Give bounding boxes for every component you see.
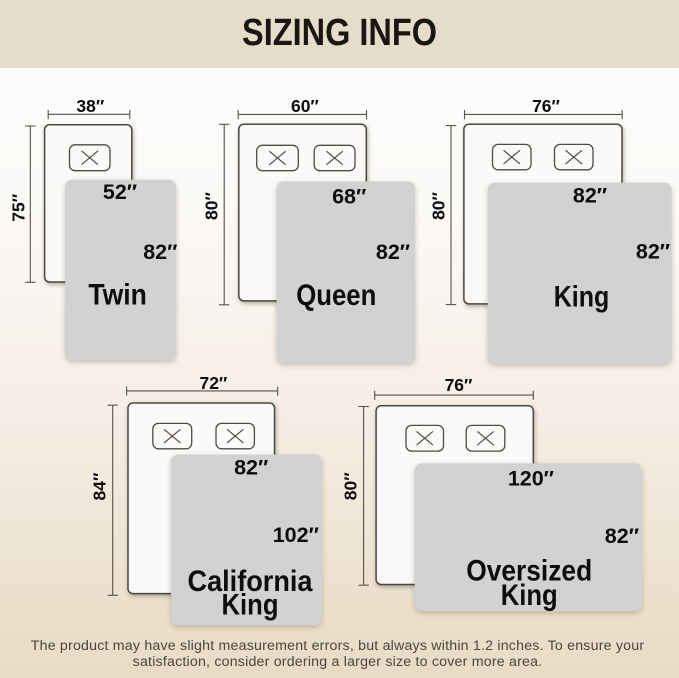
svg-text:76″: 76″ (532, 96, 560, 116)
svg-text:82″: 82″ (143, 240, 177, 264)
svg-text:82″: 82″ (573, 184, 607, 208)
svg-text:84″: 84″ (89, 472, 109, 500)
svg-text:King: King (222, 589, 279, 622)
svg-text:Twin: Twin (88, 279, 147, 312)
svg-text:38″: 38″ (76, 96, 104, 116)
svg-text:82″: 82″ (605, 524, 639, 548)
svg-text:72″: 72″ (199, 373, 227, 393)
svg-text:68″: 68″ (332, 184, 366, 208)
svg-text:80″: 80″ (429, 191, 449, 219)
svg-text:60″: 60″ (291, 96, 319, 116)
svg-text:King: King (501, 579, 558, 612)
svg-text:80″: 80″ (341, 472, 361, 500)
svg-text:82″: 82″ (234, 456, 268, 480)
svg-text:102″: 102″ (273, 523, 319, 547)
svg-text:76″: 76″ (445, 375, 473, 395)
svg-text:80″: 80″ (201, 191, 221, 219)
svg-text:Queen: Queen (296, 279, 376, 312)
svg-text:82″: 82″ (376, 240, 410, 264)
svg-text:120″: 120″ (508, 467, 554, 491)
svg-text:52″: 52″ (103, 180, 137, 204)
svg-text:75″: 75″ (9, 193, 29, 221)
svg-text:King: King (554, 280, 610, 313)
svg-text:82″: 82″ (636, 239, 670, 263)
